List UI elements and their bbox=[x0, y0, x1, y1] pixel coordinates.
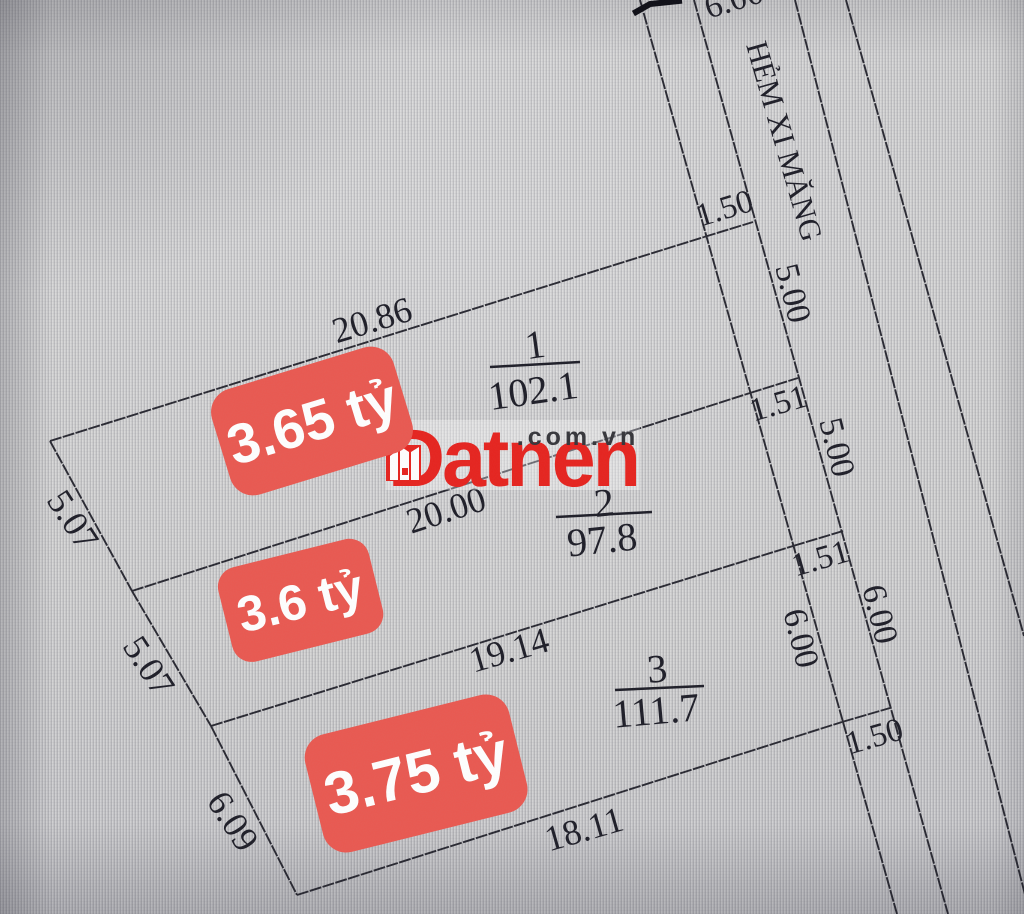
svg-text:19.14: 19.14 bbox=[465, 620, 554, 681]
svg-text:111.7: 111.7 bbox=[611, 684, 702, 736]
svg-text:1.50: 1.50 bbox=[692, 183, 758, 234]
svg-text:5.07: 5.07 bbox=[115, 629, 183, 704]
svg-text:1: 1 bbox=[522, 321, 548, 368]
svg-text:5.00: 5.00 bbox=[767, 260, 817, 327]
svg-text:1.51: 1.51 bbox=[788, 534, 853, 585]
svg-text:6.00: 6.00 bbox=[854, 581, 904, 648]
svg-text:5.07: 5.07 bbox=[39, 483, 107, 558]
svg-text:102.1: 102.1 bbox=[485, 362, 580, 419]
svg-text:3: 3 bbox=[645, 645, 669, 692]
svg-text:6.00: 6.00 bbox=[700, 0, 768, 26]
svg-text:20.86: 20.86 bbox=[327, 289, 416, 351]
svg-text:97.8: 97.8 bbox=[565, 513, 639, 565]
svg-text:5.00: 5.00 bbox=[811, 414, 861, 481]
svg-text:.com.vn: .com.vn bbox=[517, 423, 639, 451]
svg-text:6.00: 6.00 bbox=[775, 605, 825, 672]
svg-text:18.11: 18.11 bbox=[540, 799, 628, 859]
svg-text:6.09: 6.09 bbox=[199, 784, 267, 859]
svg-text:1.51: 1.51 bbox=[746, 379, 811, 430]
